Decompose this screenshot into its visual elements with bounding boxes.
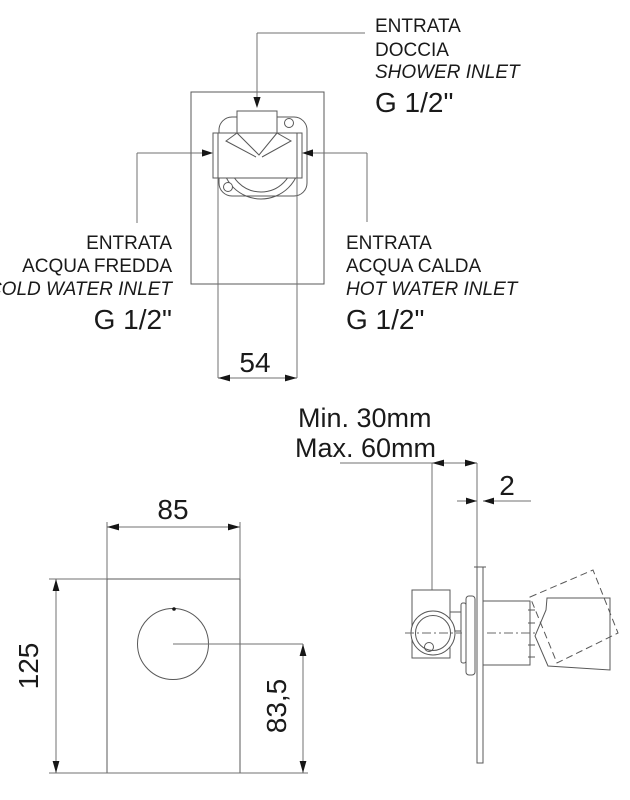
flange-disc-outer [466,596,475,675]
dim-thickness-2: 2 [457,470,531,504]
arrow-down-icon [53,761,60,773]
shower-label-line3: SHOWER INLET [375,62,521,83]
dim-83-5-text: 83,5 [261,679,292,734]
hot-thread-size: G 1/2" [346,304,424,335]
hot-label-line2: ACQUA CALDA [346,256,481,277]
cold-water-label: ENTRATA ACQUA FREDDA COLD WATER INLET G … [0,233,173,335]
center-mark-dot [172,607,176,611]
valve-body [218,133,297,178]
dim-125-lines [49,579,308,773]
dim-85: 85 [107,494,240,579]
hot-leader-line [311,153,367,222]
arrow-right-icon [202,149,213,156]
arrow-right-icon [285,375,297,382]
shower-outlet-port [237,111,277,133]
arrow-down-icon [300,761,307,773]
shower-inlet-leader [253,33,365,108]
cold-label-line3: COLD WATER INLET [0,279,173,300]
installation-diagram: 54 ENTRATA DOCCIA SHOWER INLET G 1/2" EN… [0,0,630,800]
arrow-right-icon [228,524,240,531]
top-view: 54 ENTRATA DOCCIA SHOWER INLET G 1/2" EN… [0,16,521,381]
dim-85-lines [107,522,240,579]
screw-hole-bottom-left [224,183,233,192]
screw-hole-top-right [285,119,294,128]
arrow-down-icon [253,97,260,108]
cold-water-leader [137,149,213,223]
dim-125: 125 [13,579,308,773]
hot-inlet-port [297,133,302,178]
arrow-right-icon [465,460,477,467]
arrow-up-icon [53,579,60,591]
arrow-left-icon [218,375,230,382]
arrow-right-icon [466,498,477,505]
shower-inlet-label: ENTRATA DOCCIA SHOWER INLET G 1/2" [375,16,521,118]
diagram-canvas: 54 ENTRATA DOCCIA SHOWER INLET G 1/2" EN… [0,0,630,800]
arrow-left-icon [483,498,494,505]
front-view: 85 125 83,5 [13,494,308,773]
cold-inlet-port [213,133,218,178]
dim-2-text: 2 [499,470,515,501]
hot-label-line1: ENTRATA [346,233,432,254]
hot-water-label: ENTRATA ACQUA CALDA HOT WATER INLET G 1/… [346,233,519,335]
dim-depth-lines [340,463,477,648]
shower-label-line1: ENTRATA [375,16,461,37]
dim-54-text: 54 [239,347,270,378]
dim-54: 54 [218,347,297,381]
shower-leader-line [257,33,365,99]
shower-thread-size: G 1/2" [375,87,453,118]
cold-thread-size: G 1/2" [94,304,172,335]
side-view: Min. 30mm Max. 60mm 2 [295,403,618,763]
handle-knob [535,598,610,670]
cold-label-line1: ENTRATA [86,233,172,254]
cold-leader-line [137,153,204,223]
shower-label-line2: DOCCIA [375,40,449,61]
arrow-up-icon [300,644,307,656]
dim-85-text: 85 [157,494,188,525]
dim-depth-max-text: Max. 60mm [295,433,436,463]
cold-label-line2: ACQUA FREDDA [22,256,172,277]
arrow-left-icon [107,524,119,531]
dim-depth-min-text: Min. 30mm [298,403,432,433]
hot-label-line3: HOT WATER INLET [346,279,519,300]
dim-125-text: 125 [13,643,44,690]
wall-plate-section [477,567,483,763]
hot-water-leader [302,149,367,222]
